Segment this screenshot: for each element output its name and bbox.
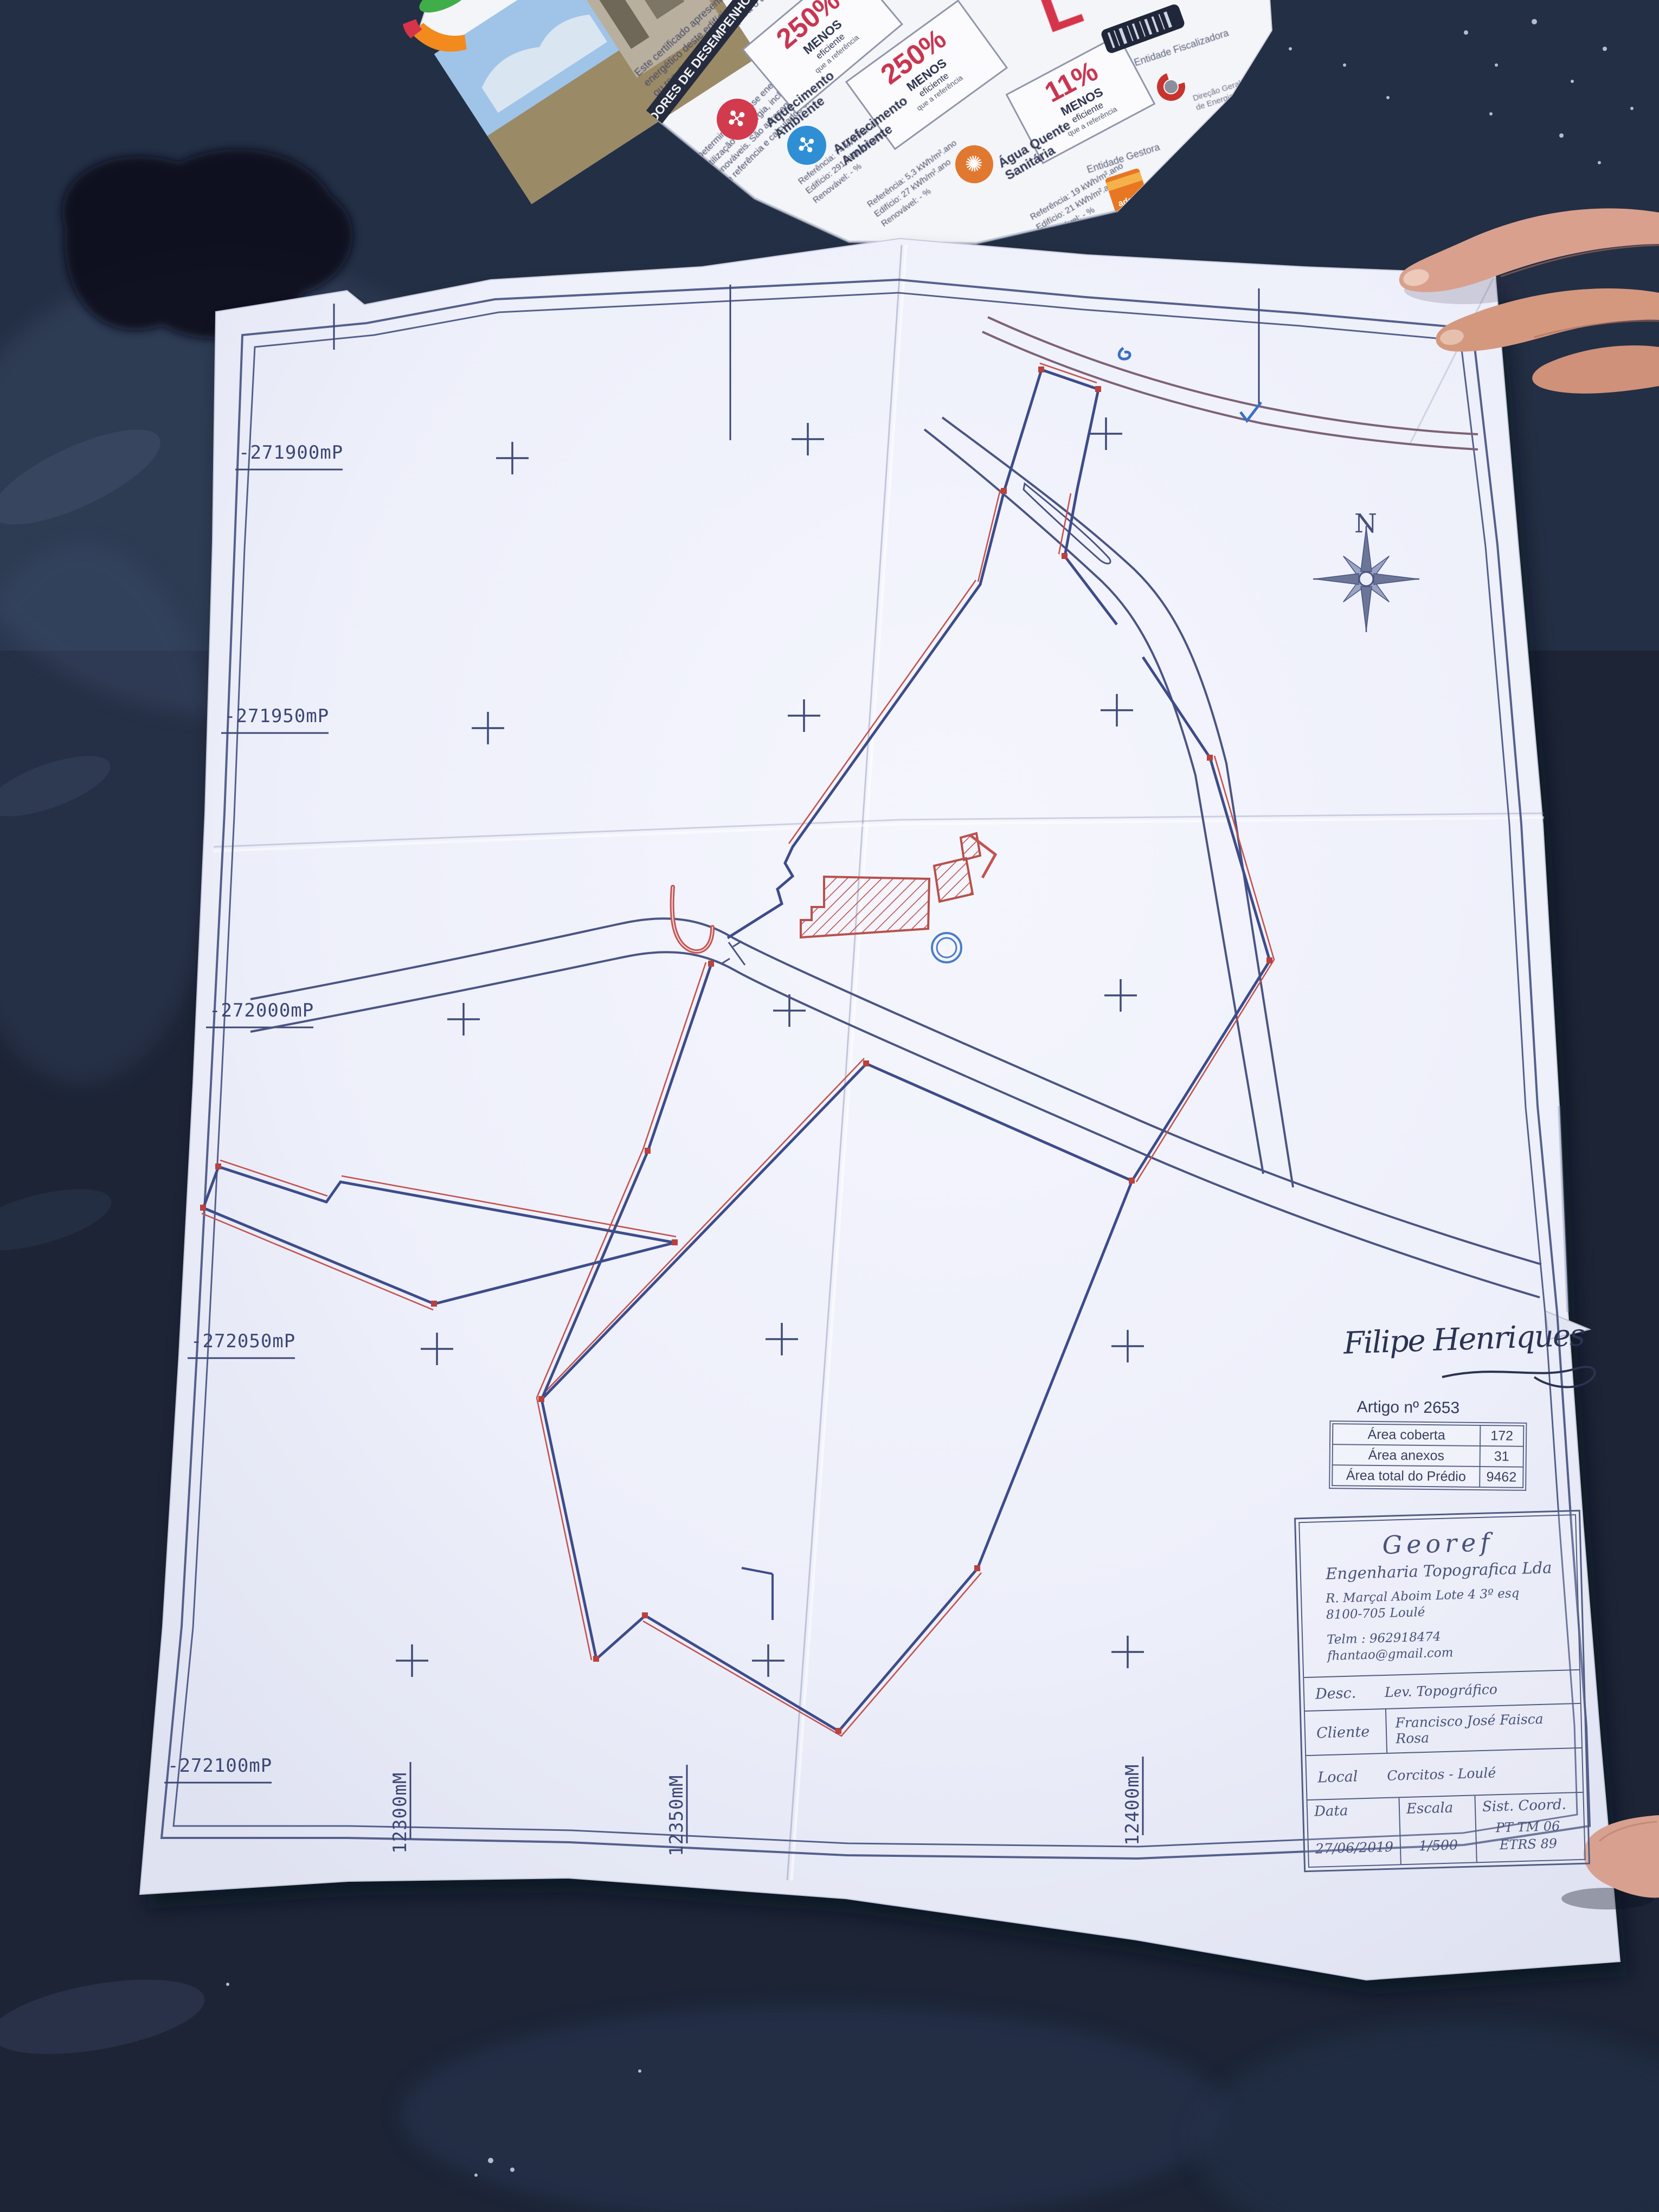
company-name: Georef	[1300, 1525, 1576, 1562]
date-value: 27/06/2019	[1309, 1838, 1400, 1857]
desc-value: Lev. Topográfico	[1385, 1681, 1498, 1700]
local-label: Local	[1307, 1767, 1387, 1786]
coord-label: Sist. Coord.	[1482, 1797, 1567, 1815]
artigo-row-label: Área coberta	[1333, 1424, 1480, 1446]
scale-value: 1/500	[1401, 1836, 1476, 1854]
date-label: Data	[1314, 1803, 1348, 1820]
company-subtitle: Engenharia Topografica Lda	[1301, 1558, 1577, 1584]
client-value: Francisco José Faisca Rosa	[1395, 1710, 1581, 1747]
coord-value-2: ETRS 89	[1477, 1834, 1580, 1854]
local-value: Corcitos - Loulé	[1387, 1765, 1496, 1784]
dgeg-logo-icon	[1149, 65, 1193, 109]
local-row: Local Corcitos - Loulé	[1306, 1748, 1583, 1801]
artigo-row: Área coberta 172	[1333, 1424, 1523, 1446]
date-scale-row: Data 27/06/2019 Escala 1/500 Sist. Coord…	[1308, 1793, 1585, 1867]
artigo-row-value: 31	[1480, 1446, 1523, 1467]
client-label: Cliente	[1306, 1722, 1386, 1741]
photo-of-topographic-plan: Este certificado apresenta a cl… energét…	[0, 0, 1659, 2212]
scale-label: Escala	[1406, 1800, 1454, 1817]
building-small	[961, 833, 980, 860]
artigo-row: Área total do Prédio 9462	[1332, 1465, 1523, 1488]
artigo-table: Artigo nº 2653 Área coberta 172 Área ane…	[1329, 1398, 1527, 1491]
artigo-row-label: Área anexos	[1333, 1444, 1480, 1467]
grid-label-272000: -272000mP	[209, 1000, 314, 1021]
artigo-row-value: 9462	[1480, 1467, 1523, 1488]
coord-value-1: PT TM 06	[1476, 1817, 1580, 1837]
building-annex	[934, 858, 973, 902]
scene-artwork	[0, 0, 1659, 2212]
energy-class-letter: L	[1028, 0, 1091, 48]
artigo-row-value: 172	[1480, 1425, 1523, 1446]
grid-label-272100: -272100mP	[168, 1755, 272, 1777]
artigo-row: Área anexos 31	[1333, 1444, 1523, 1467]
grid-label-271900: -271900mP	[239, 442, 343, 464]
artigo-row-label: Área total do Prédio	[1332, 1465, 1480, 1487]
artigo-title: Artigo nº 2653	[1357, 1398, 1527, 1418]
client-row: Cliente Francisco José Faisca Rosa	[1305, 1704, 1581, 1756]
title-block-company: Georef Engenharia Topografica Lda R. Mar…	[1300, 1515, 1579, 1678]
grid-label-272050: -272050mP	[191, 1330, 295, 1352]
grid-label-271950: -271950mP	[224, 705, 329, 727]
desc-label: Desc.	[1304, 1683, 1385, 1702]
grid-label-12300: 12300mM	[389, 1758, 411, 1854]
indicator-row: Edifício: 27 kWh/m².ano	[872, 147, 967, 221]
grid-label-12350: 12350mM	[665, 1761, 688, 1856]
grid-label-12400: 12400mM	[1121, 1750, 1144, 1846]
title-block: Georef Engenharia Topografica Lda R. Mar…	[1294, 1510, 1590, 1872]
north-label: N	[1354, 509, 1377, 539]
